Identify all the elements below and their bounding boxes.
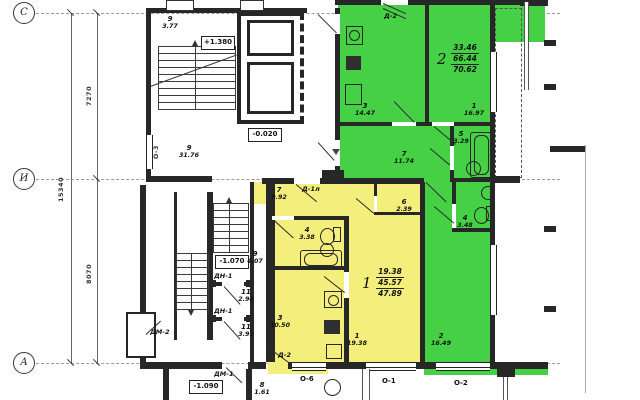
elevation-floor: -0.020 bbox=[248, 128, 282, 142]
apt2-living-area: 33.46 bbox=[451, 43, 479, 53]
wall-bottom bbox=[140, 362, 222, 369]
toilet-bowl-icon bbox=[474, 207, 489, 224]
door-label-dn1-b: ДН-1 bbox=[214, 308, 232, 315]
room-label-apt1-kitchen: 310.50 bbox=[268, 314, 292, 329]
wall-left-lower bbox=[140, 185, 146, 333]
room-label-apt2-room2: 216.49 bbox=[430, 332, 452, 347]
door-leaf-apt2-entry bbox=[318, 14, 337, 33]
axis-marker-i: И bbox=[13, 168, 35, 190]
apt1-useful-area: 45.57 bbox=[376, 277, 404, 288]
apartment-1-areas: 19.38 45.57 47.89 bbox=[376, 267, 404, 298]
washbasin-icon bbox=[466, 161, 481, 176]
door-label-dm1: ДМ-1 bbox=[214, 371, 233, 378]
fridge-icon bbox=[326, 344, 342, 359]
wall-bottom bbox=[490, 362, 548, 369]
door-label-d2-exit: Д-2 bbox=[278, 352, 291, 359]
stove-icon bbox=[346, 56, 361, 70]
sink-bowl-icon bbox=[328, 295, 339, 306]
door-gap-bath5 bbox=[450, 146, 454, 170]
elevator-shaft-1 bbox=[247, 20, 294, 56]
window-apt2-bedroom bbox=[490, 245, 497, 315]
parapet-stub bbox=[166, 0, 194, 11]
washbasin-icon bbox=[481, 186, 495, 200]
wall-stub bbox=[209, 315, 216, 322]
stairs-up-arrow bbox=[192, 40, 198, 46]
wall-kitchen-living bbox=[425, 5, 429, 122]
door-gap-kitchen1 bbox=[344, 272, 349, 298]
axis-marker-a: А bbox=[13, 352, 35, 374]
dim-total: 15340 bbox=[57, 158, 65, 220]
room-label-tambour-a: 112.94 bbox=[236, 288, 256, 303]
door-label-dn1-a: ДН-1 bbox=[214, 273, 232, 280]
door-gap-dn1-a bbox=[222, 282, 244, 286]
balcony-end-wall bbox=[495, 176, 520, 183]
window-o3 bbox=[146, 135, 153, 169]
sink-bowl-icon bbox=[349, 30, 360, 41]
wall-apt1-left bbox=[266, 182, 275, 362]
wall-bath5-bottom bbox=[452, 178, 490, 182]
window-label-o3: О-3 bbox=[153, 136, 160, 168]
porch-wall bbox=[246, 369, 252, 400]
neighbour-stub-bottom bbox=[497, 369, 515, 377]
apartment-1-number: 1 bbox=[362, 276, 372, 291]
wall-inter-apartment bbox=[420, 182, 425, 364]
elevation-upper: +1.380 bbox=[201, 36, 235, 50]
apt2-useful-area: 66.44 bbox=[451, 53, 479, 64]
dimension-line-total bbox=[71, 13, 72, 363]
stairs-upper-divider bbox=[195, 46, 196, 110]
door-label-d1l: Д-1л bbox=[302, 186, 320, 193]
door-label-d2-balcony: Д-2 bbox=[384, 13, 397, 20]
apartment-2-number: 2 bbox=[437, 52, 447, 67]
apartment-2-areas: 33.46 66.44 70.62 bbox=[451, 43, 479, 74]
door-gap-dn1-b bbox=[222, 317, 244, 321]
room-label-tambour-b: 113.91 bbox=[236, 323, 256, 338]
wall-stub bbox=[246, 280, 253, 287]
stairs-lower-a-line bbox=[229, 203, 230, 253]
stairs-lower-flight-a bbox=[213, 203, 249, 253]
wall-stub bbox=[246, 315, 253, 322]
wall-apt1-top bbox=[262, 178, 424, 184]
porch-wall bbox=[163, 369, 169, 400]
apt2-total-area: 70.62 bbox=[451, 64, 479, 75]
dim-lower: 8070 bbox=[85, 248, 93, 300]
floor-plan-canvas: С И А 7270 15340 8070 bbox=[0, 0, 640, 400]
door-label-dm2: ДМ-2 bbox=[150, 329, 169, 336]
room-label-stair-upper: 93.77 bbox=[158, 15, 182, 30]
neighbour-stub bbox=[550, 146, 586, 152]
axis-marker-c: С bbox=[13, 2, 35, 24]
room-label-apt2-room1: 116.97 bbox=[462, 102, 486, 117]
neighbour-boundary-line bbox=[585, 145, 586, 393]
balcony-outline bbox=[495, 8, 522, 178]
neighbour-stub bbox=[544, 226, 556, 232]
room-label-corridor: 931.76 bbox=[176, 144, 202, 159]
stairs-lower-a-arrow bbox=[226, 197, 232, 203]
wall-left-upper bbox=[146, 13, 151, 135]
neighbour-stub bbox=[544, 84, 556, 90]
window-o2 bbox=[436, 362, 490, 371]
bathtub-inner bbox=[304, 253, 338, 266]
parapet-stub bbox=[240, 0, 264, 11]
dimension-line-segments bbox=[97, 13, 98, 363]
apt1-living-area: 19.38 bbox=[376, 267, 404, 277]
wall-stub bbox=[209, 280, 216, 287]
neighbour-double-line bbox=[524, 2, 529, 90]
elevator-shaft-2 bbox=[247, 62, 294, 114]
room-label-porch8: 81.61 bbox=[254, 381, 270, 396]
window-label-o6: О-6 bbox=[300, 376, 314, 383]
room-label-apt2-bath: 53.29 bbox=[452, 130, 470, 145]
room-label-apt2-kitchen: 314.47 bbox=[352, 102, 378, 117]
stairs-down-arrow bbox=[188, 310, 194, 316]
dim-upper: 7270 bbox=[85, 70, 93, 122]
elevation-lower: -1.070 bbox=[215, 255, 249, 269]
room-label-apt2-hall: 711.74 bbox=[392, 150, 416, 165]
level-mark-icon bbox=[332, 149, 340, 155]
room-label-stair-lower: 94.07 bbox=[246, 250, 264, 265]
window-o6 bbox=[292, 362, 326, 371]
bathtub-icon bbox=[300, 250, 342, 269]
window-label-o2: О-2 bbox=[454, 380, 468, 387]
door-gap-d1l bbox=[294, 178, 320, 184]
neighbour-double-line-bottom bbox=[503, 377, 508, 400]
room-label-apt1-closet: 62.39 bbox=[394, 198, 414, 213]
window-o1 bbox=[366, 362, 416, 371]
room-label-apt1-hall: 79.92 bbox=[268, 186, 290, 201]
room-label-apt2-wc: 43.48 bbox=[456, 214, 474, 229]
door-gap-closet bbox=[374, 196, 377, 212]
elevation-porch: -1.090 bbox=[189, 380, 223, 394]
stove-icon bbox=[324, 320, 340, 334]
wall-bottom bbox=[326, 362, 366, 369]
wall-bottom bbox=[416, 362, 436, 369]
stairs-lower-b-line bbox=[191, 253, 192, 313]
room-label-apt1-room: 119.38 bbox=[346, 332, 368, 347]
wall-i-axis bbox=[146, 176, 212, 182]
neighbour-stub bbox=[544, 40, 556, 46]
window-label-o1: О-1 bbox=[382, 378, 396, 385]
porch-column bbox=[324, 379, 341, 396]
door-gap-bath1 bbox=[272, 216, 294, 220]
neighbour-stub bbox=[544, 306, 556, 312]
room-label-apt1-bath: 43.38 bbox=[298, 226, 316, 241]
wall-bottom bbox=[248, 362, 266, 369]
porch-double-wall bbox=[362, 369, 370, 400]
window-apt2-living bbox=[490, 52, 497, 112]
apt1-total-area: 47.89 bbox=[376, 288, 404, 299]
stairs-lower-flight-b bbox=[176, 253, 209, 313]
